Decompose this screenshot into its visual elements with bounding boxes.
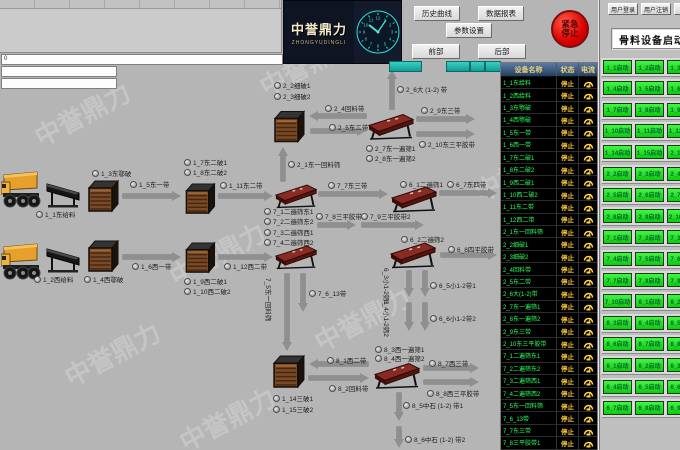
start-button[interactable]: 1_11启动 — [635, 124, 664, 138]
flow-label-text: 6_6小1-2带2 — [439, 313, 476, 323]
front-section-button[interactable]: 前部 — [412, 44, 460, 59]
flow-label: 1_9西二破1 — [184, 276, 227, 286]
current-gauge-icon — [583, 90, 594, 100]
flow-arrow — [417, 129, 475, 139]
device-current-button[interactable] — [579, 437, 597, 448]
start-button[interactable]: 7_6启动 — [667, 252, 680, 266]
device-current-button[interactable] — [579, 139, 597, 150]
device-current-button[interactable] — [579, 363, 597, 374]
start-button[interactable]: 7_4启动 — [603, 252, 632, 266]
device-name: 1_12西二带 — [501, 214, 557, 225]
start-button[interactable]: 6_2启动 — [635, 358, 664, 372]
start-button[interactable]: 1_12启动 — [667, 124, 680, 138]
flow-label-text: 1_6西一带 — [141, 261, 171, 271]
device-status: 停止 — [557, 276, 579, 287]
user-extra-button[interactable] — [674, 3, 680, 15]
trend-panel-header — [0, 0, 281, 9]
flow-label-text: 1_11东二带 — [229, 180, 262, 190]
flow-label-text: 6_4小1-2筛2 — [382, 300, 392, 337]
flow-label: 2_3细破2 — [274, 91, 310, 101]
flow-label: 8_2回料带 — [329, 383, 368, 393]
flow-label-text: 7_5东一回料筛 — [264, 278, 274, 321]
current-gauge-icon — [583, 438, 594, 448]
flow-label: 6_7东四带 — [447, 179, 486, 189]
start-button[interactable]: 2_8启动 — [603, 209, 632, 223]
flow-label: 8_8西三平胶带 — [427, 388, 479, 398]
current-gauge-icon — [583, 127, 594, 137]
current-gauge-icon — [583, 363, 594, 373]
flow-arrow — [123, 191, 181, 201]
device-status-row: 2_9东三带停止 — [501, 325, 597, 337]
device-status: 停止 — [557, 201, 579, 212]
logo-title: 中誉鼎力 — [291, 19, 347, 38]
flow-label-text: 7_6_13带 — [318, 288, 346, 298]
device-status: 停止 — [557, 226, 579, 237]
device-current-button[interactable] — [579, 276, 597, 287]
start-button[interactable]: 7_2启动 — [635, 230, 664, 244]
start-button[interactable]: 8_8启动 — [667, 337, 680, 351]
flow-label-text: 1_3东鄂破 — [101, 168, 131, 178]
status-dot-icon — [405, 436, 412, 443]
device-status: 停止 — [557, 288, 579, 299]
start-button[interactable]: 8_7启动 — [635, 337, 664, 351]
flow-arrow — [394, 427, 404, 448]
user-logout-button[interactable]: 用户注销 — [641, 3, 671, 15]
device-current-button[interactable] — [579, 238, 597, 249]
status-dot-icon — [184, 278, 191, 285]
start-button[interactable]: 2_5启动 — [603, 188, 632, 202]
start-button[interactable]: 6_8启动 — [635, 401, 664, 415]
start-button[interactable]: 7_3启动 — [667, 230, 680, 244]
status-dot-icon — [329, 124, 336, 131]
status-table-header: 设备名称 状态 电流 — [501, 63, 597, 77]
device-status-row: 1_5东一带停止 — [501, 127, 597, 139]
device-name: 1_3东鄂破 — [501, 102, 557, 113]
device-name: 7_6_13带 — [501, 412, 557, 423]
current-gauge-icon — [583, 339, 594, 349]
flow-label: 2_7东一遍筛1 — [366, 143, 415, 153]
logo-subtitle: ZHONGYUDINGLI — [292, 40, 347, 46]
device-current-button[interactable] — [579, 350, 597, 361]
flow-label-text: 2_10东三平胶带 — [428, 139, 475, 149]
device-current-button[interactable] — [579, 214, 597, 225]
current-gauge-icon — [583, 140, 594, 150]
device-current-button[interactable] — [579, 400, 597, 411]
start-button[interactable]: 6_9启动 — [667, 401, 680, 415]
device-status-row: 1_1东给料停止 — [501, 77, 597, 89]
flow-label-text: 2_3细破2 — [283, 91, 310, 101]
device-status: 停止 — [557, 189, 579, 200]
status-dot-icon — [84, 276, 91, 283]
status-dot-icon — [329, 385, 336, 392]
flow-arrow — [278, 147, 288, 181]
start-button[interactable]: 2_6启动 — [635, 188, 664, 202]
machine-feeder-icon — [46, 181, 82, 208]
device-name: 2_10东三平胶带 — [501, 338, 557, 349]
device-current-button[interactable] — [579, 176, 597, 187]
flow-arrow — [319, 189, 388, 199]
start-button[interactable]: 1_9启动 — [667, 103, 680, 117]
start-button[interactable]: 8_4启动 — [635, 316, 664, 330]
flow-label: 8_5中石 (1-2) 带1 — [403, 400, 463, 410]
start-button[interactable]: 6_7启动 — [603, 401, 632, 415]
current-gauge-icon — [583, 351, 594, 361]
flow-label: 2_2细破1 — [274, 80, 310, 90]
start-button[interactable]: 1_3启动 — [667, 60, 680, 74]
device-name: 1_11东二带 — [501, 201, 557, 212]
flow-label: 1_7东二破1 — [184, 157, 227, 167]
device-current-button[interactable] — [579, 201, 597, 212]
screen-tab[interactable] — [446, 61, 470, 72]
flow-label-text: 6_7东四带 — [456, 179, 486, 189]
start-button[interactable]: 1_4启动 — [603, 81, 632, 95]
flow-label: 7_7东三带 — [328, 180, 367, 190]
screen-tab[interactable] — [485, 61, 501, 72]
status-dot-icon — [264, 239, 271, 246]
device-name: 7_8三平胶带1 — [501, 437, 557, 448]
device-status-row: 7_1二遍筛东1停止 — [501, 350, 597, 362]
device-name: 1_4西鄂破 — [501, 114, 557, 125]
start-button[interactable]: 8_3启动 — [603, 316, 632, 330]
start-button[interactable]: 1_8启动 — [635, 103, 664, 117]
current-gauge-icon — [583, 376, 594, 386]
current-gauge-icon — [583, 227, 594, 237]
device-current-button[interactable] — [579, 375, 597, 386]
device-name: 1_9西二破1 — [501, 176, 557, 187]
status-dot-icon — [325, 105, 332, 112]
device-name: 2_8东一遍筛2 — [501, 313, 557, 324]
device-status: 停止 — [557, 152, 579, 163]
flow-label: 2_5东二带 — [329, 122, 368, 132]
device-name: 1_6西一带 — [501, 139, 557, 150]
rear-section-button[interactable]: 后部 — [478, 44, 526, 59]
start-button[interactable]: 2_7启动 — [667, 188, 680, 202]
emergency-stop-button[interactable]: 紧急停止 — [551, 10, 589, 48]
current-gauge-icon — [583, 426, 594, 436]
col-current: 电流 — [579, 63, 597, 76]
device-current-button[interactable] — [579, 89, 597, 100]
flow-label-text: 7_9三平胶带2 — [370, 211, 410, 221]
device-name: 2_2细破1 — [501, 238, 557, 249]
start-button[interactable]: 6_1启动 — [603, 358, 632, 372]
flow-arrow — [387, 70, 397, 109]
start-button[interactable]: 1_10启动 — [603, 124, 632, 138]
device-status-row: 2_1东一回料筛停止 — [501, 226, 597, 238]
machine-screen-icon — [367, 111, 415, 142]
status-dot-icon — [224, 263, 231, 270]
start-button[interactable]: 7_1启动 — [603, 230, 632, 244]
device-status: 停止 — [557, 127, 579, 138]
parameter-settings-button[interactable]: 参数设置 — [446, 23, 492, 38]
device-name: 1_5东一带 — [501, 127, 557, 138]
flow-label: 2_4回料带 — [325, 103, 364, 113]
screen-tab[interactable] — [389, 61, 422, 72]
trend-panel — [0, 0, 282, 53]
start-button[interactable]: 1_15启动 — [635, 145, 664, 159]
start-panel-title: 骨料设备启动 — [611, 28, 680, 50]
machine-truck-icon — [1, 170, 45, 210]
device-status-row: 1_9西二破1停止 — [501, 176, 597, 188]
data-report-button[interactable]: 数据报表 — [478, 6, 524, 21]
start-button[interactable]: 2_2启动 — [603, 167, 632, 181]
status-dot-icon — [220, 182, 227, 189]
device-current-button[interactable] — [579, 412, 597, 423]
device-status: 停止 — [557, 437, 579, 448]
flow-label-text: 2_1东一回料筛 — [297, 159, 340, 169]
device-status-row: 1_7东二破1停止 — [501, 152, 597, 164]
device-current-button[interactable] — [579, 102, 597, 113]
flow-arrow — [282, 274, 292, 351]
status-dot-icon — [366, 145, 373, 152]
flow-arrow — [440, 188, 497, 198]
device-status-row: 1_8东二破2停止 — [501, 164, 597, 176]
status-dot-icon — [273, 406, 280, 413]
current-gauge-icon — [583, 103, 594, 113]
device-status: 停止 — [557, 102, 579, 113]
current-gauge-icon — [583, 276, 594, 286]
device-status: 停止 — [557, 263, 579, 274]
machine-feeder-icon — [46, 246, 82, 273]
flow-label: 6_2二遍筛2 — [401, 234, 444, 244]
device-current-button[interactable] — [579, 288, 597, 299]
flow-label: 1_6西一带 — [132, 261, 171, 271]
current-gauge-icon — [583, 152, 594, 162]
flow-label: 6_4小1-2筛2 — [382, 300, 392, 337]
device-status: 停止 — [557, 338, 579, 349]
device-status: 停止 — [557, 412, 579, 423]
list-row[interactable] — [1, 78, 117, 89]
flow-label-text: 6_8四平胶带 — [457, 244, 494, 254]
status-dot-icon — [92, 170, 99, 177]
status-dot-icon — [429, 360, 436, 367]
flow-label: 8_7西三带 — [429, 358, 468, 368]
flow-label: 7_9三平胶带2 — [361, 211, 410, 221]
device-name: 7_4二遍筛西2 — [501, 388, 557, 399]
device-name: 7_5东一回料筛 — [501, 400, 557, 411]
device-current-button[interactable] — [579, 164, 597, 175]
flow-label: 2_1东一回料筛 — [288, 159, 340, 169]
flow-arrow — [420, 271, 430, 297]
device-status-row: 1_11东二带停止 — [501, 201, 597, 213]
current-gauge-icon — [583, 413, 594, 423]
status-dot-icon — [430, 282, 437, 289]
device-status: 停止 — [557, 89, 579, 100]
flow-label: 2_8东一遍筛2 — [366, 153, 415, 163]
start-button[interactable]: 8_6启动 — [603, 337, 632, 351]
flow-label: 1_14三破1 — [273, 393, 313, 403]
start-button[interactable]: 1_7启动 — [603, 103, 632, 117]
start-button[interactable]: 7_5启动 — [635, 252, 664, 266]
start-button[interactable]: 1_6启动 — [667, 81, 680, 95]
flow-label-text: 2_6大 (1-2) 带 — [406, 84, 447, 94]
screen-tab[interactable] — [470, 61, 485, 72]
status-dot-icon — [184, 169, 191, 176]
watermark: 中誉鼎力 — [172, 378, 281, 450]
device-name: 2_9东三带 — [501, 325, 557, 336]
device-current-button[interactable] — [579, 425, 597, 436]
flow-label-text: 2_8东一遍筛2 — [375, 153, 415, 163]
device-status-row: 7_6_13带停止 — [501, 412, 597, 424]
device-status: 停止 — [557, 77, 579, 88]
machine-screen-icon — [274, 243, 318, 271]
flow-label: 6_8四平胶带 — [448, 244, 494, 254]
device-current-button[interactable] — [579, 127, 597, 138]
flow-label-text: 8_4西一遍筛2 — [384, 353, 424, 363]
device-current-button[interactable] — [579, 251, 597, 262]
device-status: 停止 — [557, 139, 579, 150]
flow-label-text: 7_3二遍筛西1 — [273, 227, 313, 237]
device-name: 7_7东三带 — [501, 425, 557, 436]
flow-label: 7_2二遍筛东2 — [264, 216, 313, 226]
device-current-button[interactable] — [579, 325, 597, 336]
status-dot-icon — [316, 213, 323, 220]
svg-text:11: 11 — [368, 17, 373, 22]
device-status-row: 7_8三平胶带1停止 — [501, 437, 597, 449]
current-gauge-icon — [583, 165, 594, 175]
machine-screen-icon — [373, 360, 421, 391]
status-dot-icon — [34, 276, 41, 283]
start-button[interactable]: 1_1启动 — [603, 60, 632, 74]
device-status-row: 7_5东一回料筛停止 — [501, 400, 597, 412]
flow-label-text: 2_9东三带 — [430, 105, 460, 115]
device-status-row: 7_4二遍筛西2停止 — [501, 388, 597, 400]
flow-label-text: 8_1西二带 — [336, 355, 366, 365]
start-button[interactable]: 2_1启动 — [667, 145, 680, 159]
machine-screen-icon — [390, 185, 438, 213]
machine-crusher-icon — [86, 239, 120, 273]
current-gauge-icon — [583, 326, 594, 336]
device-current-button[interactable] — [579, 189, 597, 200]
start-button[interactable]: 8_2启动 — [667, 294, 680, 308]
current-gauge-icon — [583, 177, 594, 187]
flow-arrow — [318, 220, 356, 230]
col-status: 状态 — [557, 63, 579, 76]
device-current-button[interactable] — [579, 313, 597, 324]
start-button[interactable]: 6_4启动 — [603, 380, 632, 394]
flow-arrow — [298, 274, 308, 312]
device-status: 停止 — [557, 350, 579, 361]
flow-label: 8_4西一遍筛2 — [375, 353, 424, 363]
start-button[interactable]: 2_9启动 — [635, 209, 664, 223]
flow-arrow — [404, 303, 414, 331]
device-status-row: 2_6大(1-2)带停止 — [501, 288, 597, 300]
device-status: 停止 — [557, 313, 579, 324]
device-status-row: 2_7东一遍筛1停止 — [501, 301, 597, 313]
device-status-row: 1_2西给料停止 — [501, 89, 597, 101]
device-status-row: 1_10西二破2停止 — [501, 189, 597, 201]
current-gauge-icon — [583, 252, 594, 262]
flow-label: 7_8三平胶带1 — [316, 211, 365, 221]
start-button[interactable]: 7_9启动 — [667, 273, 680, 287]
device-name: 2_7东一遍筛1 — [501, 301, 557, 312]
flow-label: 1_3东鄂破 — [92, 168, 131, 178]
device-current-button[interactable] — [579, 301, 597, 312]
start-button[interactable]: 6_5启动 — [635, 380, 664, 394]
device-status: 停止 — [557, 388, 579, 399]
start-button[interactable]: 2_10启动 — [667, 209, 680, 223]
start-button[interactable]: 1_2启动 — [635, 60, 664, 74]
current-gauge-icon — [583, 388, 594, 398]
device-name: 7_1二遍筛东1 — [501, 350, 557, 361]
device-current-button[interactable] — [579, 226, 597, 237]
user-login-button[interactable]: 用户登录 — [608, 3, 638, 15]
start-button[interactable]: 7_7启动 — [603, 273, 632, 287]
device-status-row: 1_12西二带停止 — [501, 214, 597, 226]
status-dot-icon — [264, 208, 271, 215]
flow-label-text: 2_7东一遍筛1 — [375, 143, 415, 153]
flow-label-text: 1_10西二破2 — [193, 286, 231, 296]
flow-arrow — [424, 377, 479, 387]
start-button[interactable]: 7_10启动 — [603, 294, 632, 308]
start-button[interactable]: 2_3启动 — [635, 167, 664, 181]
device-name: 7_2二遍筛东2 — [501, 363, 557, 374]
device-name: 1_10西二破2 — [501, 189, 557, 200]
list-row[interactable] — [1, 66, 117, 77]
status-dot-icon — [400, 181, 407, 188]
device-name: 1_2西给料 — [501, 89, 557, 100]
device-status: 停止 — [557, 176, 579, 187]
start-button[interactable]: 6_3启动 — [667, 358, 680, 372]
device-current-button[interactable] — [579, 77, 597, 88]
current-gauge-icon — [583, 314, 594, 324]
device-current-button[interactable] — [579, 338, 597, 349]
flow-label: 1_1东给料 — [36, 209, 75, 219]
flow-label: 7_4二遍筛西2 — [264, 237, 313, 247]
flow-label-text: 7_1二遍筛东1 — [273, 206, 313, 216]
history-curve-button[interactable]: 历史曲线 — [414, 6, 460, 21]
value-zero: 0 — [4, 56, 7, 62]
device-current-button[interactable] — [579, 114, 597, 125]
current-gauge-icon — [583, 78, 594, 88]
device-current-button[interactable] — [579, 388, 597, 399]
status-dot-icon — [130, 181, 137, 188]
device-name: 1_7东二破1 — [501, 152, 557, 163]
flow-label: 7_5东一回料筛 — [264, 278, 274, 321]
flow-label: 2_9东三带 — [421, 105, 460, 115]
flow-label: 2_6大 (1-2) 带 — [397, 84, 447, 94]
device-name: 7_3二遍筛西1 — [501, 375, 557, 386]
start-button[interactable]: 2_4启动 — [667, 167, 680, 181]
device-current-button[interactable] — [579, 263, 597, 274]
company-logo: 中誉鼎力 ZHONGYUDINGLI — [284, 1, 354, 63]
current-gauge-icon — [583, 301, 594, 311]
device-name: 2_4回料带 — [501, 263, 557, 274]
flow-label-text: 6_1二遍筛1 — [409, 179, 443, 189]
flow-label: 6_5小1-2带1 — [430, 280, 476, 290]
start-button[interactable]: 6_6启动 — [667, 380, 680, 394]
current-gauge-icon — [583, 214, 594, 224]
start-button[interactable]: 8_1启动 — [635, 294, 664, 308]
status-dot-icon — [430, 315, 437, 322]
device-name: 1_8东二破2 — [501, 164, 557, 175]
start-button[interactable]: 8_5启动 — [667, 316, 680, 330]
flow-label: 2_10东三平胶带 — [419, 139, 475, 149]
device-name: 1_1东给料 — [501, 77, 557, 88]
device-status: 停止 — [557, 425, 579, 436]
start-button[interactable]: 1_5启动 — [635, 81, 664, 95]
device-status-row: 2_10东三平胶带停止 — [501, 338, 597, 350]
device-status: 停止 — [557, 164, 579, 175]
device-current-button[interactable] — [579, 152, 597, 163]
device-status: 停止 — [557, 238, 579, 249]
start-button[interactable]: 7_8启动 — [635, 273, 664, 287]
flow-label: 1_5东一带 — [130, 179, 169, 189]
start-button[interactable]: 1_14启动 — [603, 145, 632, 159]
flow-label: 8_6中石 (1-2) 带2 — [405, 434, 465, 444]
scada-main-screen: 中誉鼎力中誉鼎力中誉鼎力中誉鼎力中誉鼎力中誉鼎力中誉鼎力中誉鼎力1_3东鄂破1_… — [0, 0, 680, 450]
flow-label-text: 1_4西鄂破 — [93, 274, 123, 284]
device-name: 2_6大(1-2)带 — [501, 288, 557, 299]
